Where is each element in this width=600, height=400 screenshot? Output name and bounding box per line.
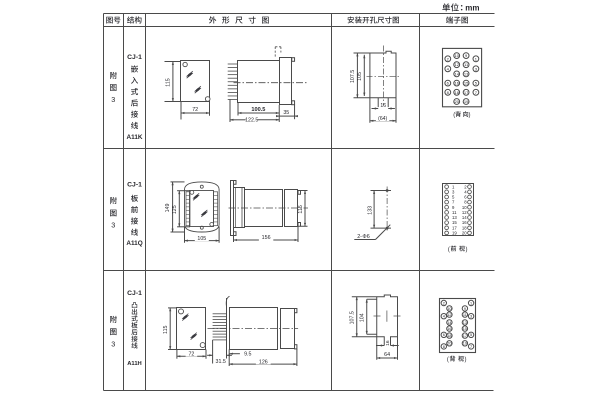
svg-text:104: 104 [360, 313, 366, 322]
svg-text:): ) [469, 113, 471, 119]
svg-text:115: 115 [298, 205, 304, 213]
svg-text:CJ-1: CJ-1 [127, 54, 142, 61]
svg-text:): ) [466, 247, 468, 253]
svg-text:13: 13 [463, 321, 467, 325]
svg-text:20: 20 [462, 230, 467, 235]
svg-text:(: ( [447, 357, 449, 363]
svg-text:3: 3 [111, 340, 115, 349]
svg-text:(: ( [453, 113, 455, 119]
svg-text:A11H: A11H [127, 361, 142, 367]
svg-text:115: 115 [163, 325, 169, 333]
svg-text:19: 19 [452, 230, 457, 235]
svg-text:15: 15 [464, 81, 469, 86]
svg-text:115: 115 [165, 78, 171, 86]
svg-text:16: 16 [380, 103, 386, 109]
svg-text:35: 35 [283, 110, 289, 116]
svg-text:17: 17 [463, 334, 467, 338]
svg-text:20: 20 [454, 99, 459, 104]
svg-text:mm: mm [465, 3, 479, 12]
svg-text:(: ( [448, 247, 450, 253]
svg-text:16: 16 [385, 340, 391, 346]
svg-text:): ) [465, 357, 467, 363]
svg-text:3: 3 [111, 221, 115, 230]
svg-text:1: 1 [470, 301, 472, 305]
svg-text:149: 149 [165, 203, 171, 212]
svg-text:133: 133 [367, 206, 373, 215]
svg-text:(64): (64) [378, 116, 387, 122]
svg-text:100.5: 100.5 [251, 107, 265, 113]
svg-text:15: 15 [463, 327, 467, 331]
svg-text:17: 17 [464, 90, 469, 95]
svg-text:Φ6: Φ6 [362, 234, 369, 240]
svg-text:A11Q: A11Q [126, 240, 142, 247]
svg-text:8: 8 [443, 345, 445, 349]
svg-text:CJ-1: CJ-1 [127, 290, 142, 297]
svg-text:126: 126 [259, 359, 268, 365]
svg-text:107.5: 107.5 [349, 311, 355, 324]
svg-text:64: 64 [384, 352, 390, 358]
svg-text:13: 13 [464, 71, 469, 76]
svg-text:9: 9 [464, 307, 466, 311]
svg-text:19: 19 [463, 342, 467, 346]
svg-text:19: 19 [464, 99, 469, 104]
svg-text:72: 72 [192, 107, 198, 113]
svg-text:122.5: 122.5 [245, 118, 258, 124]
svg-text:CJ-1: CJ-1 [127, 182, 142, 189]
svg-text:18: 18 [454, 90, 459, 95]
svg-text:18: 18 [447, 334, 451, 338]
svg-text:9.5: 9.5 [244, 352, 251, 358]
svg-text:14: 14 [454, 71, 459, 76]
svg-text:31.5: 31.5 [216, 359, 226, 365]
svg-text:72: 72 [188, 351, 194, 357]
svg-text:12: 12 [454, 62, 459, 67]
svg-text:2: 2 [443, 301, 445, 305]
svg-text:156: 156 [262, 235, 271, 241]
svg-text:105: 105 [357, 72, 363, 81]
svg-text:105: 105 [197, 236, 206, 242]
svg-text:10: 10 [454, 53, 459, 58]
svg-text:16: 16 [454, 81, 459, 86]
svg-text:A11K: A11K [127, 134, 143, 141]
svg-text:11: 11 [463, 313, 467, 317]
svg-text:107.5: 107.5 [350, 70, 356, 83]
svg-text:6: 6 [443, 333, 445, 337]
svg-text:4: 4 [443, 315, 445, 319]
svg-text:12: 12 [447, 313, 451, 317]
svg-text:3: 3 [470, 315, 472, 319]
svg-text:5: 5 [470, 333, 472, 337]
svg-text:125: 125 [172, 205, 178, 214]
svg-text:3: 3 [111, 95, 115, 104]
svg-text:14: 14 [447, 321, 451, 325]
svg-text:20: 20 [447, 342, 451, 346]
svg-text:7: 7 [470, 345, 472, 349]
svg-text:10: 10 [447, 307, 451, 311]
svg-text:16: 16 [447, 327, 451, 331]
